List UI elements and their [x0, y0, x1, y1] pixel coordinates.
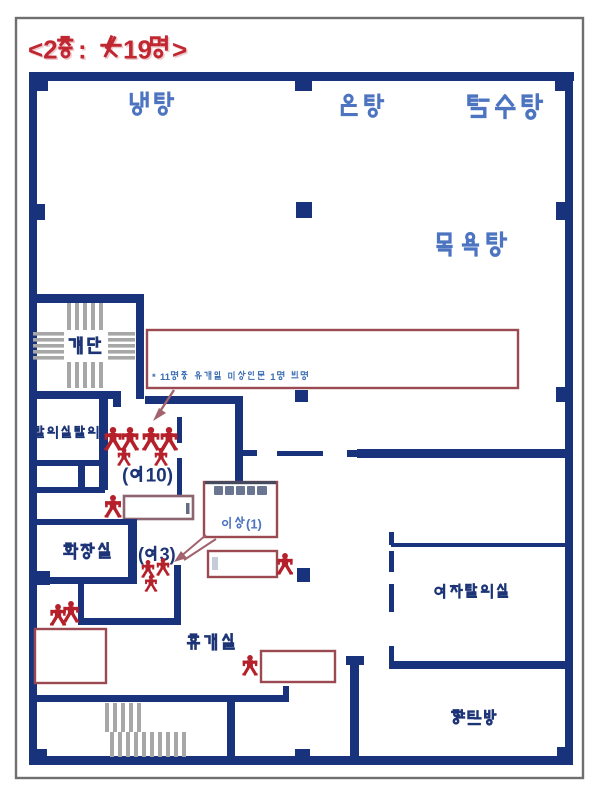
svg-text:(: ( [122, 466, 129, 487]
svg-text:*: * [152, 372, 156, 383]
svg-text::: : [78, 34, 87, 64]
svg-text:10): 10) [146, 466, 173, 487]
svg-text:<2: <2 [28, 34, 58, 64]
svg-text:1: 1 [270, 372, 276, 383]
svg-text:19: 19 [123, 34, 152, 64]
svg-text:11: 11 [160, 372, 171, 383]
svg-text:(1): (1) [246, 517, 262, 532]
svg-text:(: ( [138, 545, 144, 565]
svg-text:>: > [172, 34, 187, 64]
